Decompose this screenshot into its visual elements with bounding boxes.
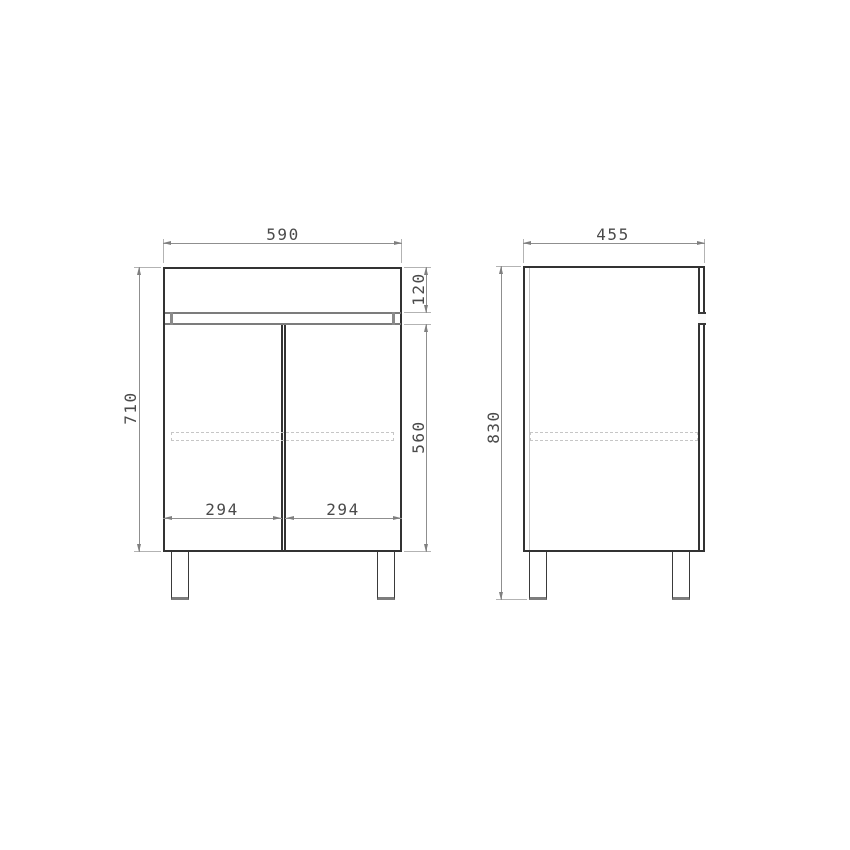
dim-label-overall-height: 710 <box>123 391 139 424</box>
front-handle-strip-bottom-line <box>165 323 401 325</box>
side-front-leg <box>672 552 690 600</box>
dim-830-arrow-top <box>499 266 503 274</box>
dim-label-top-section-height: 120 <box>411 272 427 305</box>
dim-710-arrow-top <box>137 267 141 275</box>
dim-294-right-arrow-right <box>393 516 401 520</box>
front-hidden-shelf-outline <box>171 432 394 441</box>
front-left-leg <box>171 552 189 600</box>
dim-label-left-door-width: 294 <box>205 502 238 518</box>
side-door-panel-line <box>698 268 700 550</box>
dim-710-arrow-bottom <box>137 544 141 552</box>
dim-455-arrow-left <box>523 241 531 245</box>
dim-120-arrow-bottom <box>424 305 428 313</box>
dim-590-arrow-left <box>163 241 171 245</box>
front-handle-strip-left-cap <box>170 312 173 325</box>
dim-830-arrow-bottom <box>499 592 503 600</box>
dim-455-arrow-right <box>697 241 705 245</box>
side-back-panel-line <box>529 268 530 550</box>
side-back-leg <box>529 552 547 600</box>
dim-label-right-door-width: 294 <box>326 502 359 518</box>
side-cabinet-outline <box>523 266 705 552</box>
dim-294-left-arrow-left <box>164 516 172 520</box>
dim-560-arrow-top <box>424 324 428 332</box>
dim-590-arrow-right <box>394 241 402 245</box>
dim-label-total-height: 830 <box>486 410 502 443</box>
side-hidden-shelf-outline <box>530 432 698 441</box>
side-handle-notch <box>698 312 706 325</box>
dim-label-depth: 455 <box>596 227 629 243</box>
front-right-leg <box>377 552 395 600</box>
drawing-canvas: 590 710 120 560 294 294 <box>0 0 850 850</box>
dim-294-left-arrow-right <box>273 516 281 520</box>
dim-560-arrow-bottom <box>424 544 428 552</box>
dim-label-door-height: 560 <box>411 420 427 453</box>
front-handle-strip-top-line <box>165 312 401 314</box>
dim-294-right-arrow-left <box>286 516 294 520</box>
front-handle-strip-right-cap <box>392 312 395 325</box>
dim-label-overall-width: 590 <box>266 227 299 243</box>
